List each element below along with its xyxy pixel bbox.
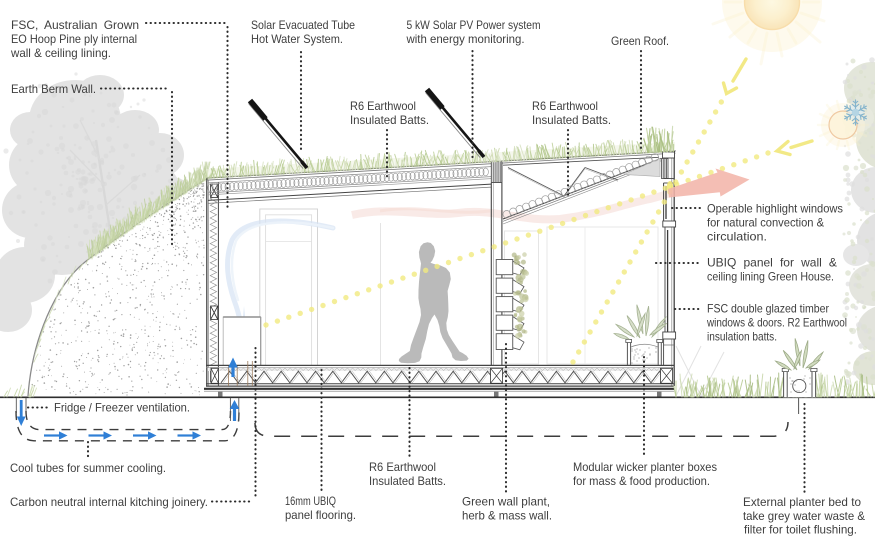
svg-text:filter for toilet flushing.: filter for toilet flushing.: [744, 523, 857, 537]
svg-text:Modular wicker planter boxes: Modular wicker planter boxes: [573, 460, 717, 474]
svg-text:UBIQ panel for wall &: UBIQ panel for wall &: [707, 256, 837, 270]
svg-text:R6 Earthwool: R6 Earthwool: [369, 460, 436, 474]
svg-text:Hot Water System.: Hot Water System.: [251, 32, 343, 46]
svg-text:Insulated Batts.: Insulated Batts.: [350, 113, 429, 127]
svg-text:for natural convection &: for natural convection &: [707, 216, 824, 230]
svg-text:FSC, Australian Grown: FSC, Australian Grown: [11, 18, 139, 32]
svg-text:Carbon neutral internal kitchi: Carbon neutral internal kitching joinery…: [10, 495, 208, 509]
svg-text:windows & doors. R2 Earthwool: windows & doors. R2 Earthwool: [706, 316, 847, 330]
svg-text:Fridge / Freezer ventilation.: Fridge / Freezer ventilation.: [54, 401, 190, 415]
svg-text:Green wall plant,: Green wall plant,: [462, 495, 550, 509]
svg-text:take grey water waste &: take grey water waste &: [743, 509, 865, 523]
svg-text:FSC double glazed timber: FSC double glazed timber: [707, 302, 829, 316]
svg-text:with energy monitoring.: with energy monitoring.: [406, 32, 525, 46]
svg-text:insulation batts.: insulation batts.: [707, 330, 777, 344]
svg-text:Insulated Batts.: Insulated Batts.: [532, 113, 611, 127]
svg-text:Solar Evacuated Tube: Solar Evacuated Tube: [251, 18, 355, 32]
svg-text:for mass & food production.: for mass & food production.: [573, 474, 710, 488]
svg-text:EO Hoop Pine ply internal: EO Hoop Pine ply internal: [11, 32, 137, 46]
svg-text:16mm UBIQ: 16mm UBIQ: [285, 494, 336, 508]
svg-text:R6 Earthwool: R6 Earthwool: [350, 99, 416, 113]
svg-text:wall & ceiling lining.: wall & ceiling lining.: [10, 46, 111, 60]
svg-text:Green Roof.: Green Roof.: [611, 34, 669, 48]
svg-text:circulation.: circulation.: [707, 230, 767, 244]
svg-text:R6 Earthwool: R6 Earthwool: [532, 99, 598, 113]
svg-text:External planter bed to: External planter bed to: [743, 495, 861, 509]
svg-text:Operable highlight windows: Operable highlight windows: [707, 202, 843, 216]
svg-text:Cool tubes for summer cooling.: Cool tubes for summer cooling.: [10, 461, 166, 475]
svg-text:Insulated Batts.: Insulated Batts.: [369, 474, 446, 488]
svg-text:herb & mass wall.: herb & mass wall.: [462, 509, 552, 523]
svg-text:panel flooring.: panel flooring.: [285, 508, 356, 522]
svg-text:5 kW Solar PV Power system: 5 kW Solar PV Power system: [407, 18, 541, 32]
svg-text:Earth Berm Wall.: Earth Berm Wall.: [11, 82, 96, 96]
svg-text:ceiling lining Green House.: ceiling lining Green House.: [707, 270, 834, 284]
